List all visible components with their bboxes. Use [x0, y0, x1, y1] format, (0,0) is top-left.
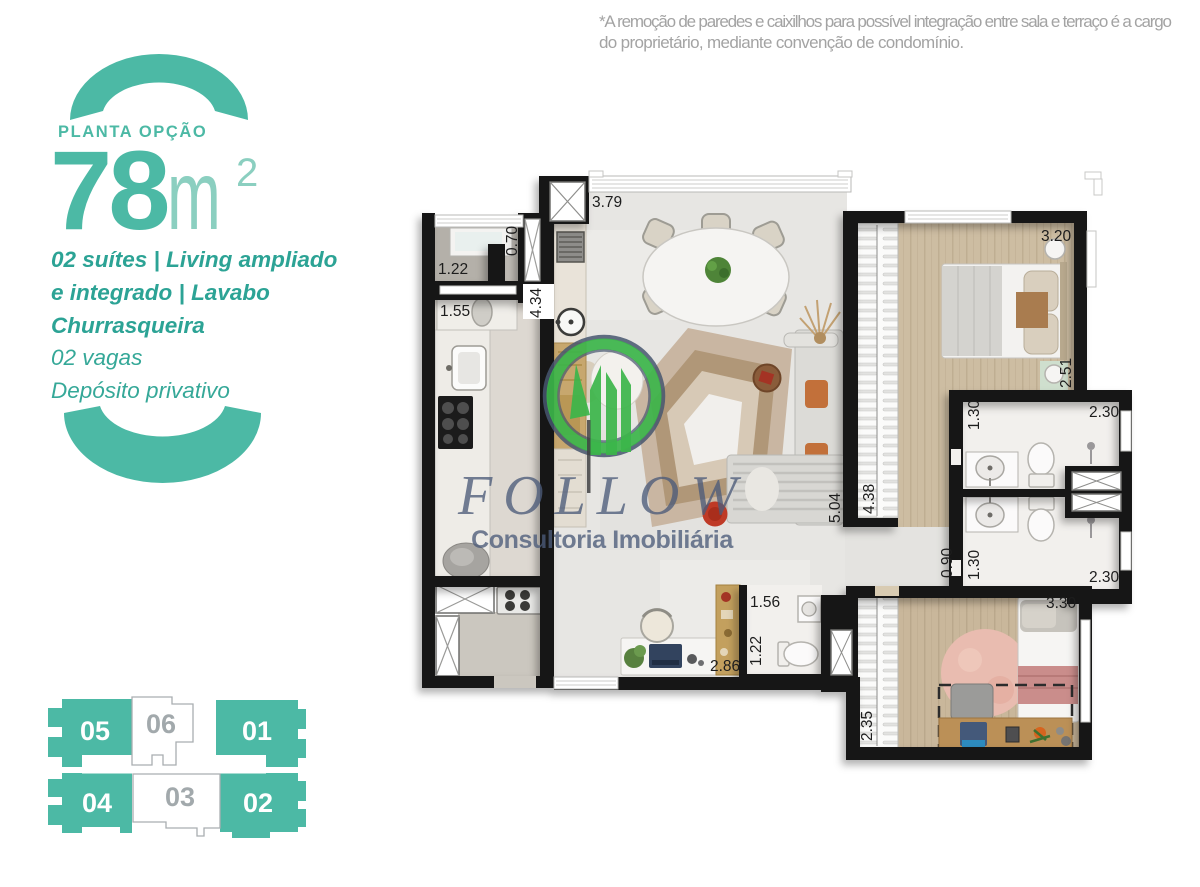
svg-text:2.51: 2.51 — [1058, 358, 1075, 388]
svg-text:e integrado | Lavabo: e integrado | Lavabo — [51, 280, 270, 305]
svg-text:2: 2 — [236, 151, 258, 195]
svg-text:02 vagas: 02 vagas — [51, 345, 142, 370]
svg-text:FOLLOW: FOLLOW — [457, 465, 748, 527]
svg-text:2.35: 2.35 — [859, 711, 876, 741]
svg-text:4.38: 4.38 — [861, 484, 878, 514]
svg-text:04: 04 — [82, 788, 112, 818]
svg-text:03: 03 — [165, 782, 195, 812]
svg-text:01: 01 — [242, 716, 272, 746]
svg-text:do proprietário, mediante conv: do proprietário, mediante convenção de c… — [599, 33, 963, 52]
svg-text:1.22: 1.22 — [438, 261, 468, 278]
svg-text:0.90: 0.90 — [939, 547, 956, 578]
svg-text:0.70: 0.70 — [504, 225, 521, 256]
svg-text:3.79: 3.79 — [592, 194, 622, 211]
svg-text:Consultoria Imobiliária: Consultoria Imobiliária — [471, 526, 734, 554]
svg-text:02 suítes | Living ampliado: 02 suítes | Living ampliado — [51, 247, 338, 272]
svg-text:1.30: 1.30 — [966, 549, 983, 580]
svg-text:5.04: 5.04 — [827, 492, 844, 523]
svg-text:78: 78 — [50, 128, 167, 253]
svg-text:1.30: 1.30 — [966, 399, 983, 430]
svg-text:2.86: 2.86 — [710, 658, 740, 675]
svg-text:3.20: 3.20 — [1041, 228, 1072, 245]
svg-text:1.22: 1.22 — [748, 636, 765, 666]
svg-text:05: 05 — [80, 716, 110, 746]
svg-text:1.55: 1.55 — [440, 303, 470, 320]
svg-text:02: 02 — [243, 788, 273, 818]
svg-text:2.30: 2.30 — [1089, 569, 1120, 586]
svg-text:3.30: 3.30 — [1046, 595, 1077, 612]
svg-text:Churrasqueira: Churrasqueira — [51, 313, 205, 338]
svg-text:1.56: 1.56 — [750, 594, 780, 611]
svg-text:Depósito privativo: Depósito privativo — [51, 378, 230, 403]
svg-text:4.34: 4.34 — [528, 287, 545, 318]
svg-text:*A remoção de paredes e caixil: *A remoção de paredes e caixilhos para p… — [599, 12, 1171, 31]
svg-text:2.30: 2.30 — [1089, 404, 1120, 421]
svg-text:m: m — [167, 140, 221, 250]
svg-text:06: 06 — [146, 709, 176, 739]
